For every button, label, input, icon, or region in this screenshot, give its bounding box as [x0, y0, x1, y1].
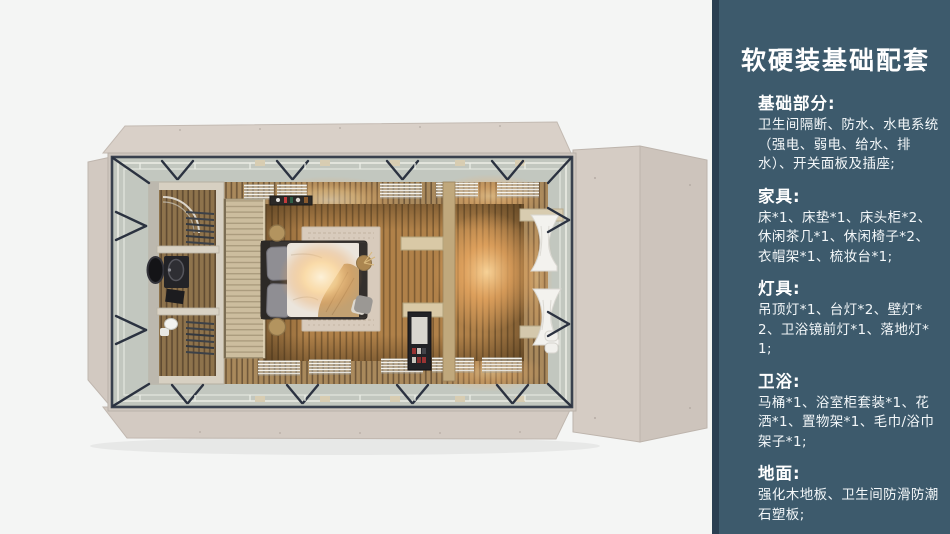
slide-canvas: 软硬装基础配套 基础部分: 卫生间隔断、防水、水电系统（强电、弱电、给水、排水）… — [0, 0, 950, 534]
section-heading: 地面: — [758, 465, 942, 482]
bottom-flap — [103, 407, 571, 439]
section-sanitary: 卫浴: 马桶*1、浴室柜套装*1、花洒*1、置物架*1、毛巾/浴巾架子*1; — [758, 373, 942, 453]
pod-shelf-upper — [157, 246, 219, 253]
floorplan-render — [0, 0, 712, 534]
wardrobe — [224, 199, 265, 358]
right-panel-outer — [640, 146, 707, 442]
floorplan-svg — [0, 0, 712, 534]
bedside-lamp-glow — [279, 240, 363, 314]
ground-shadow — [90, 437, 600, 455]
vanity-mirror — [148, 257, 164, 283]
wall-shelf-decor — [270, 196, 312, 205]
top-flap — [103, 122, 571, 153]
section-furniture: 家具: 床*1、床垫*1、床头柜*2、休闲茶几*1、休闲椅子*2、衣帽架*1、梳… — [758, 188, 942, 268]
toilet — [165, 319, 178, 330]
section-lighting: 灯具: 吊顶灯*1、台灯*2、壁灯*2、卫浴镜前灯*1、落地灯*1; — [758, 280, 942, 360]
cushion-gray — [353, 295, 373, 315]
bathroom-pod — [148, 182, 225, 384]
section-heading: 基础部分: — [758, 95, 942, 112]
section-flooring: 地面: 强化木地板、卫生间防滑防潮石塑板; — [758, 465, 942, 525]
pod-shelf-lower — [157, 308, 219, 315]
sidebar: 软硬装基础配套 基础部分: 卫生间隔断、防水、水电系统（强电、弱电、给水、排水）… — [712, 0, 950, 534]
section-basics: 基础部分: 卫生间隔断、防水、水电系统（强电、弱电、给水、排水）、开关面板及插座… — [758, 95, 942, 175]
section-body: 吊顶灯*1、台灯*2、壁灯*2、卫浴镜前灯*1、落地灯*1; — [758, 301, 942, 360]
wall-shelf-upper — [401, 237, 443, 250]
sidebar-edge-strip — [712, 0, 719, 534]
nightstand-bottom — [269, 319, 286, 336]
towel-roll-2 — [545, 343, 558, 353]
section-body: 床*1、床垫*1、床头柜*2、休闲茶几*1、休闲椅子*2、衣帽架*1、梳妆台*1… — [758, 209, 942, 268]
section-heading: 卫浴: — [758, 373, 942, 390]
faucet — [168, 268, 171, 271]
sidebar-content: 软硬装基础配套 基础部分: 卫生间隔断、防水、水电系统（强电、弱电、给水、排水）… — [719, 0, 950, 534]
right-panel-inner — [573, 146, 640, 442]
section-body: 卫生间隔断、防水、水电系统（强电、弱电、给水、排水）、开关面板及插座; — [758, 116, 942, 175]
section-heading: 家具: — [758, 188, 942, 205]
vanity-stool — [165, 289, 185, 304]
section-body: 强化木地板、卫生间防滑防潮石塑板; — [758, 486, 942, 525]
nightstand-top — [269, 225, 285, 241]
section-body: 马桶*1、浴室柜套装*1、花洒*1、置物架*1、毛巾/浴巾架子*1; — [758, 394, 942, 453]
page-title: 软硬装基础配套 — [741, 47, 950, 74]
partition-wall — [443, 182, 455, 381]
section-heading: 灯具: — [758, 280, 942, 297]
